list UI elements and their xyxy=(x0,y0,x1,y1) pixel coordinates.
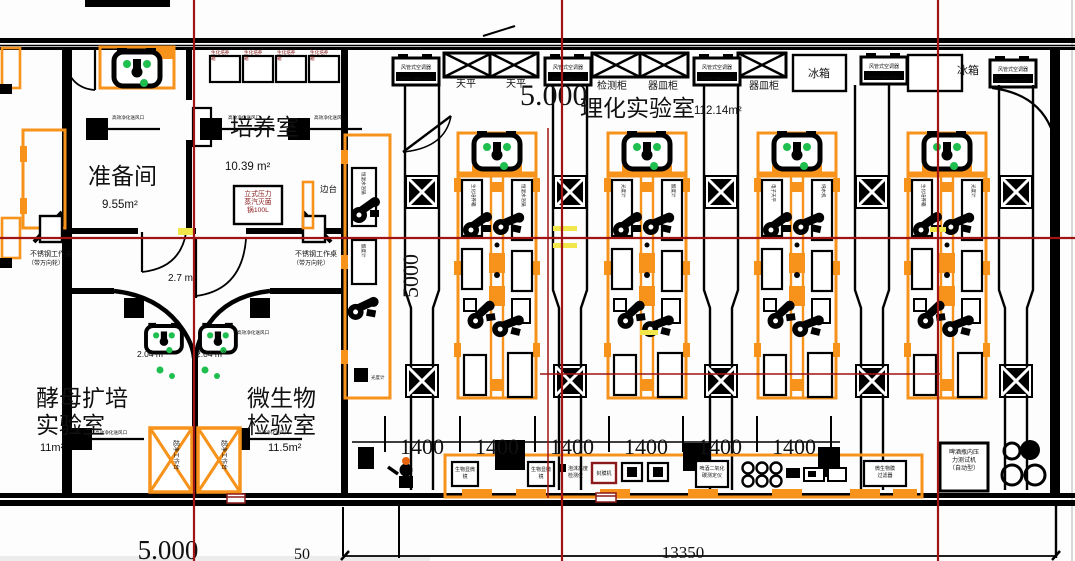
cad-floorplan-viewport: 风管式空调器 FGR7.5/BJ(Q)U 风管式空调器 FGR7.5/BJ(Q)… xyxy=(0,0,1075,561)
co2-tester-label: 碳测定仪 xyxy=(702,472,722,479)
ss-table-label: 不锈钢工作桌 xyxy=(30,249,72,258)
side-table-label: 边台 xyxy=(320,184,337,194)
ss-table-label: 不锈钢工作桌 xyxy=(295,249,337,258)
bay-dim: 1400 xyxy=(550,434,594,459)
membrane-filter-label: 过滤器 xyxy=(877,472,892,479)
fridge-label: 冰箱 xyxy=(957,63,979,77)
foam-detector-label: 检测仪 xyxy=(568,472,583,479)
ac-label: FGR7.5/BJ(Q)U xyxy=(868,75,899,80)
floorplan-canvas: 风管式空调器 FGR7.5/BJ(Q)U 风管式空调器 FGR7.5/BJ(Q)… xyxy=(0,0,1075,561)
corridor-area: 2.7 m² xyxy=(168,273,197,284)
ac-label: 风管式空调器 xyxy=(998,66,1028,73)
incubator-label: 箱 xyxy=(310,55,315,62)
autoclave-label: 锅100L xyxy=(247,205,269,214)
lobby-right-area: 2.04 m² xyxy=(196,349,225,359)
vent-label: 高效净化送风口 xyxy=(314,114,347,121)
bay-dim: 1400 xyxy=(624,434,668,459)
bay-dim: 1400 xyxy=(400,434,444,459)
ss-table-label: （带万向轮） xyxy=(293,259,329,267)
pressure-tester-label: （自动型） xyxy=(949,464,979,472)
room-yeast: 实验室 xyxy=(36,412,105,438)
incubator-label: 生化培养 xyxy=(310,49,329,56)
room-physchem: 理化实验室 xyxy=(580,95,695,121)
depth-dim: 5000 xyxy=(398,254,423,298)
bench-equipment-label: 酸度计 xyxy=(360,244,367,258)
bay-dim: 1400 xyxy=(772,434,816,459)
bench-equipment-label: 纯水机 xyxy=(820,184,827,198)
clean-bench-label: 超净工作台 xyxy=(172,440,180,470)
test-cabinet-label: 检测柜 xyxy=(597,79,627,92)
room-prep-area: 9.55m² xyxy=(102,199,138,211)
co2-tester-label: 啤酒二氧化 xyxy=(699,465,724,472)
bench-equipment-label: 光度计 xyxy=(371,374,385,381)
ac-label: 风管式空调器 xyxy=(869,63,899,70)
microscope-label: 镜 xyxy=(538,473,543,480)
ac-label: FGR7.5/BJ(Q)U xyxy=(997,78,1028,83)
vessel-cabinet-label: 器皿柜 xyxy=(648,79,678,92)
microscope-label: 镜 xyxy=(462,473,467,480)
room-culture: 培养室 xyxy=(230,114,299,140)
sealer-label: 封膜机 xyxy=(596,470,611,477)
bench-equipment-label: 恒温水浴锅 xyxy=(360,172,367,195)
room-physchem-area: 112.14m² xyxy=(694,105,742,117)
room-yeast: 酵母扩培 xyxy=(36,385,128,411)
incubator-label: 箱 xyxy=(244,55,249,62)
room-micro: 检验室 xyxy=(247,412,316,438)
bay-dim: 1400 xyxy=(475,434,519,459)
ac-label: 风管式空调器 xyxy=(401,64,431,71)
total-dim: 13350 xyxy=(662,543,705,561)
room-micro-area: 11.5m² xyxy=(268,442,302,454)
pressure-tester-label: 啤酒瓶内压 xyxy=(949,448,979,456)
microscope-label: 生物显微 xyxy=(455,466,475,473)
ac-label: FGR7.5/BJ(Q)U xyxy=(701,76,732,81)
fridge-label: 冰箱 xyxy=(808,66,830,80)
incubator-label: 生化培养 xyxy=(244,49,263,56)
incubator-label: 箱 xyxy=(277,55,282,62)
bench-equipment-label: 生化培养箱 xyxy=(920,184,927,207)
membrane-filter-label: 微生物膜 xyxy=(875,465,895,472)
room-prep: 准备间 xyxy=(88,163,157,189)
autoclave-label: 立式压力 xyxy=(244,189,271,198)
autoclave: 立式压力 蒸汽灭菌 锅100L xyxy=(234,186,282,224)
level-upper: 5.000 xyxy=(520,79,588,112)
ac-label: 风管式空调器 xyxy=(702,64,732,71)
bench-equipment-label: 恒温水浴锅 xyxy=(520,184,527,207)
bench-equipment-label: 酸度计 xyxy=(670,184,677,198)
bay-dim: 1400 xyxy=(698,434,742,459)
room-culture-area: 10.39 m² xyxy=(225,161,271,173)
vent-label: 高效净化送风口 xyxy=(237,329,270,336)
ac-label: 风管式空调器 xyxy=(553,64,583,71)
vent-label: 高效净化送风口 xyxy=(112,114,145,121)
bench-equipment-label: 电子天平 xyxy=(770,184,777,202)
autoclave-label: 蒸汽灭菌 xyxy=(244,197,271,206)
ac-label: FGR7.5/BJ(Q)U xyxy=(400,76,431,81)
room-micro: 微生物 xyxy=(247,385,316,411)
lobby-left-area: 2.04 m² xyxy=(137,349,166,359)
room-yeast-area: 11m² xyxy=(40,442,65,454)
vessel-cabinet-label: 器皿柜 xyxy=(749,79,779,92)
clean-bench-label: 超净工作台 xyxy=(220,440,228,470)
foam-detector-label: 泡沫高度 xyxy=(568,465,588,472)
incubator-label: 生化培养 xyxy=(277,49,296,56)
ss-table-label: （带万向轮） xyxy=(28,259,64,267)
bench-equipment-label: 光度计 xyxy=(970,184,977,198)
balance-label: 天平 xyxy=(456,79,476,90)
level-lower: 5.000 xyxy=(138,535,199,561)
bench-equipment-label: 光度计 xyxy=(620,184,627,198)
incubator-label: 生化培养 xyxy=(211,49,230,56)
pressure-tester-label: 力测试机 xyxy=(952,456,976,464)
wall-dim: 50 xyxy=(294,546,310,561)
incubator-label: 箱 xyxy=(211,55,216,62)
bench-equipment-label: 生化培养箱 xyxy=(470,184,477,207)
